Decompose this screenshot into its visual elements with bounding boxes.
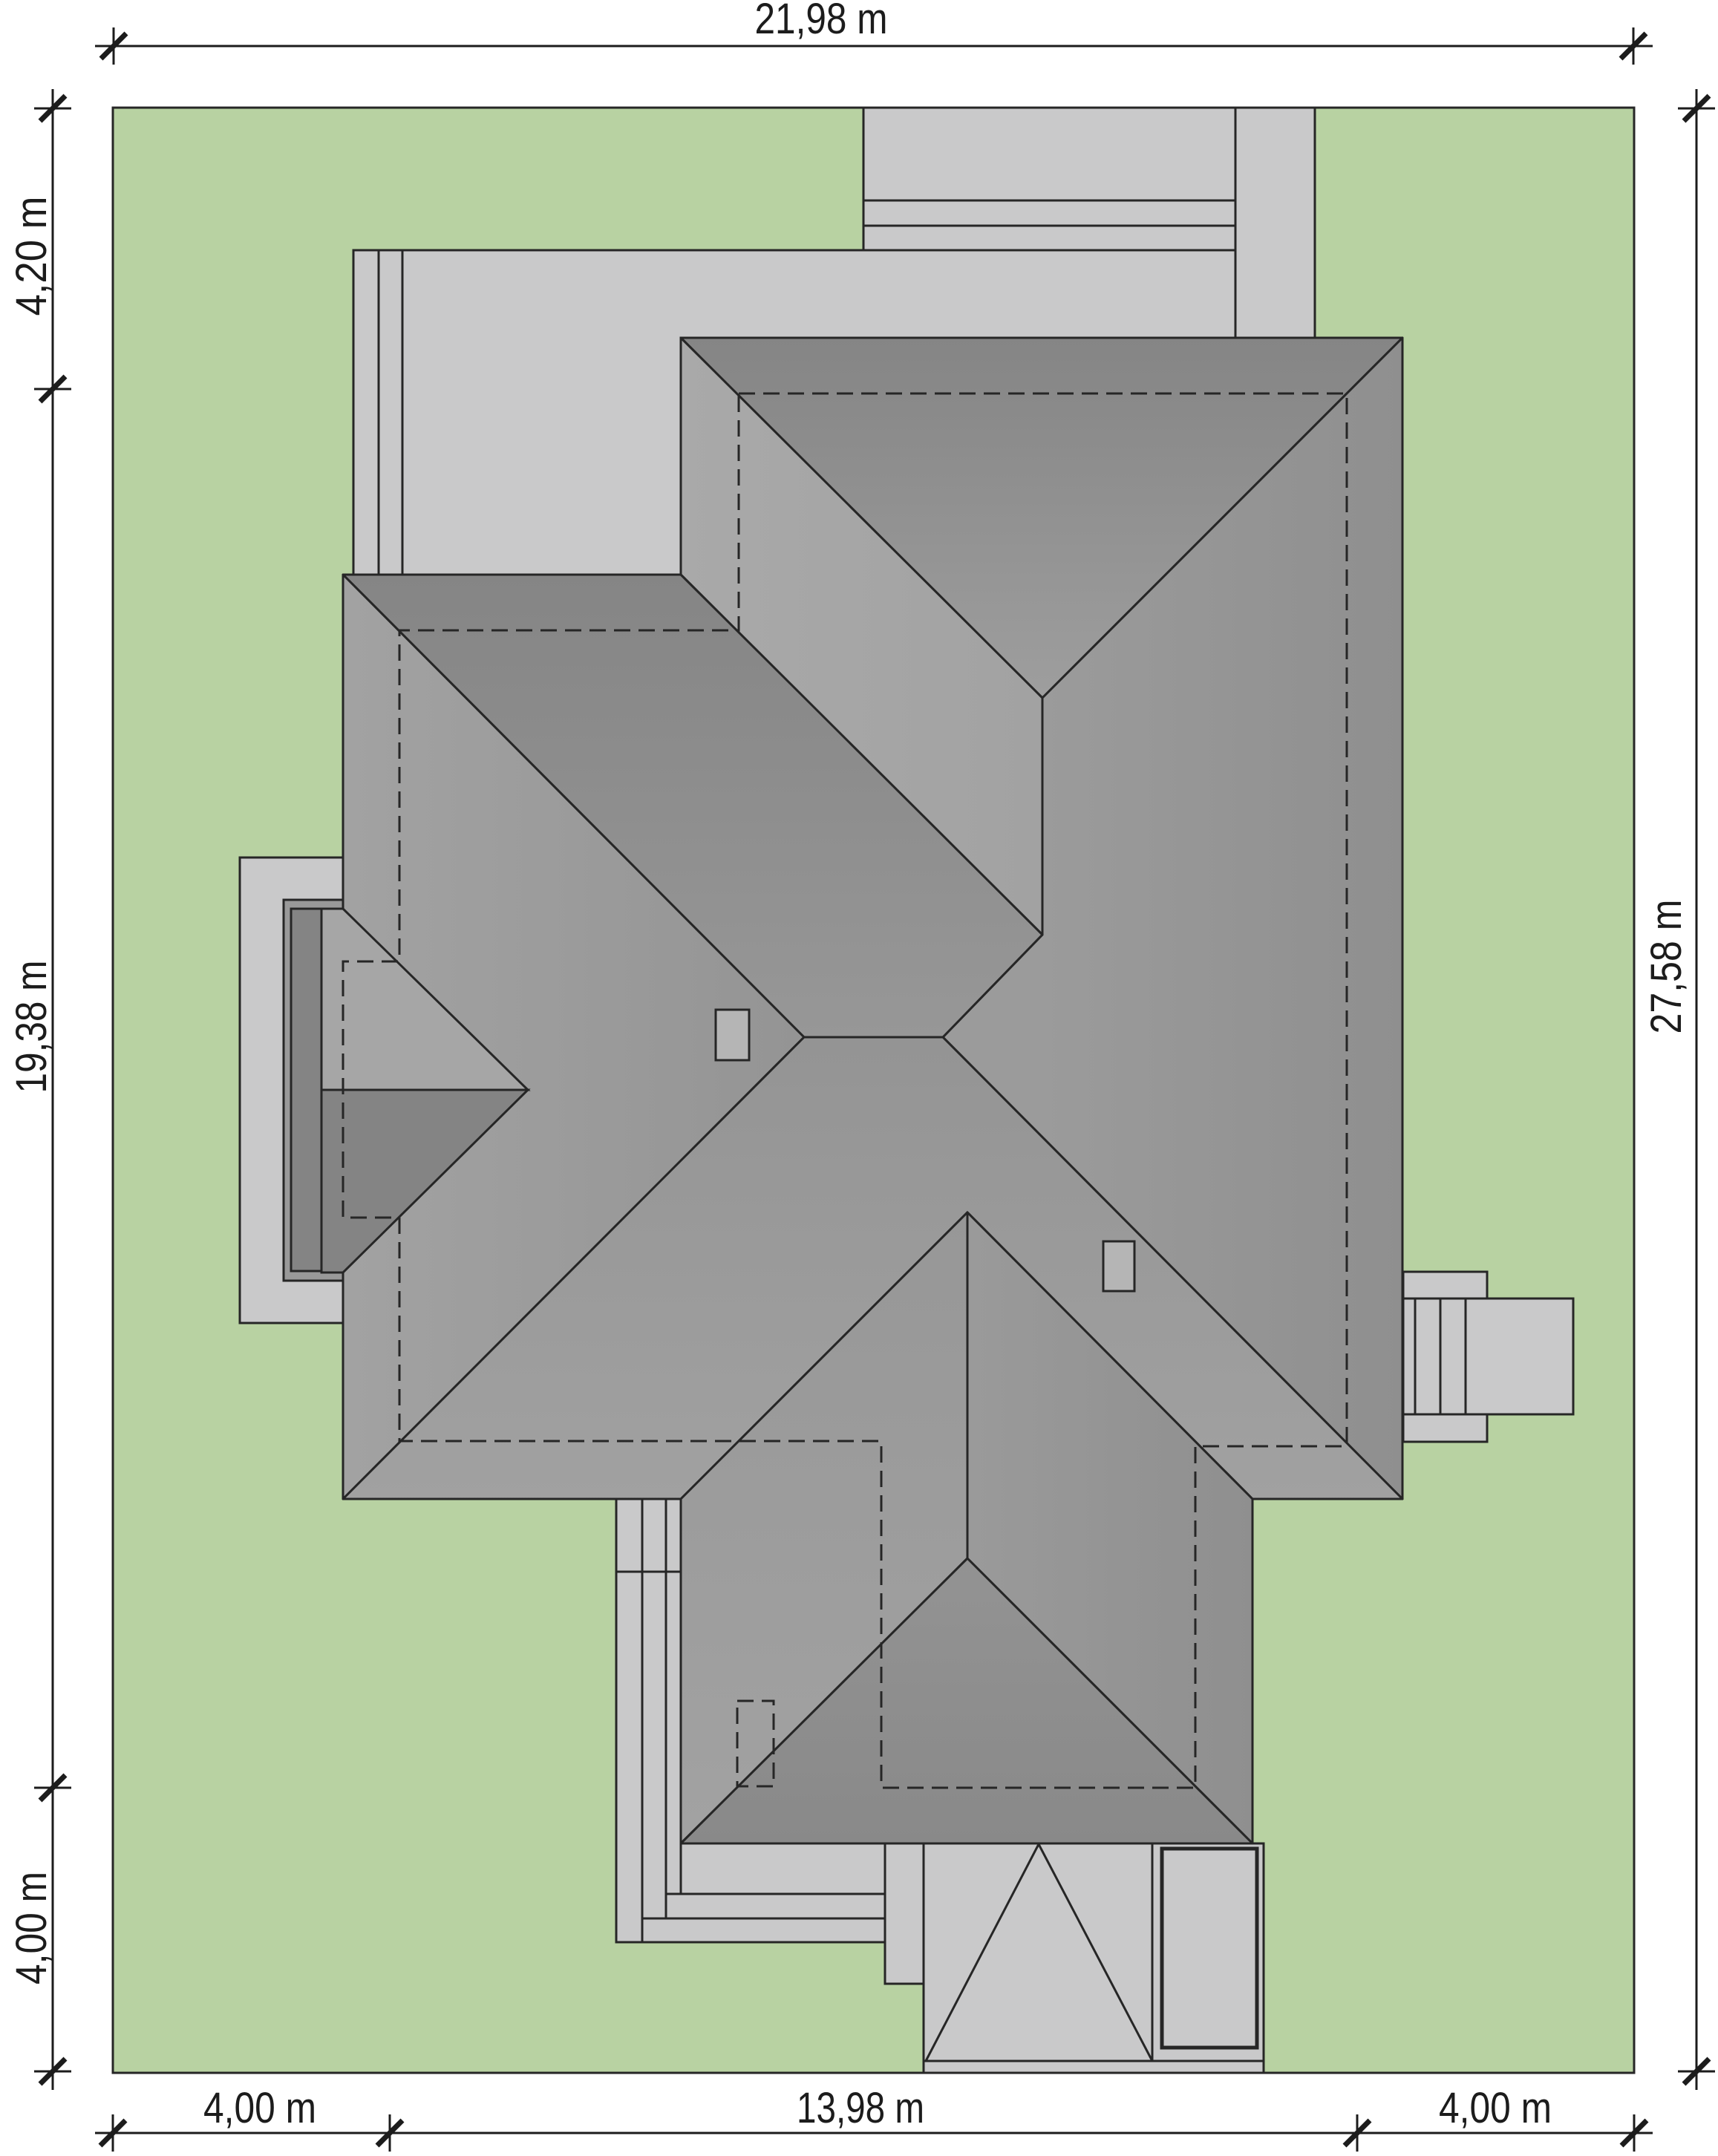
svg-text:21,98 m: 21,98 m bbox=[755, 0, 888, 43]
svg-text:19,38 m: 19,38 m bbox=[7, 961, 56, 1094]
svg-text:27,58 m: 27,58 m bbox=[1642, 900, 1691, 1034]
svg-text:4,20 m: 4,20 m bbox=[7, 197, 56, 316]
svg-text:4,00 m: 4,00 m bbox=[1439, 2084, 1552, 2132]
svg-text:13,98 m: 13,98 m bbox=[797, 2084, 924, 2132]
svg-text:4,00 m: 4,00 m bbox=[7, 1872, 56, 1984]
svg-text:4,00 m: 4,00 m bbox=[203, 2084, 316, 2132]
